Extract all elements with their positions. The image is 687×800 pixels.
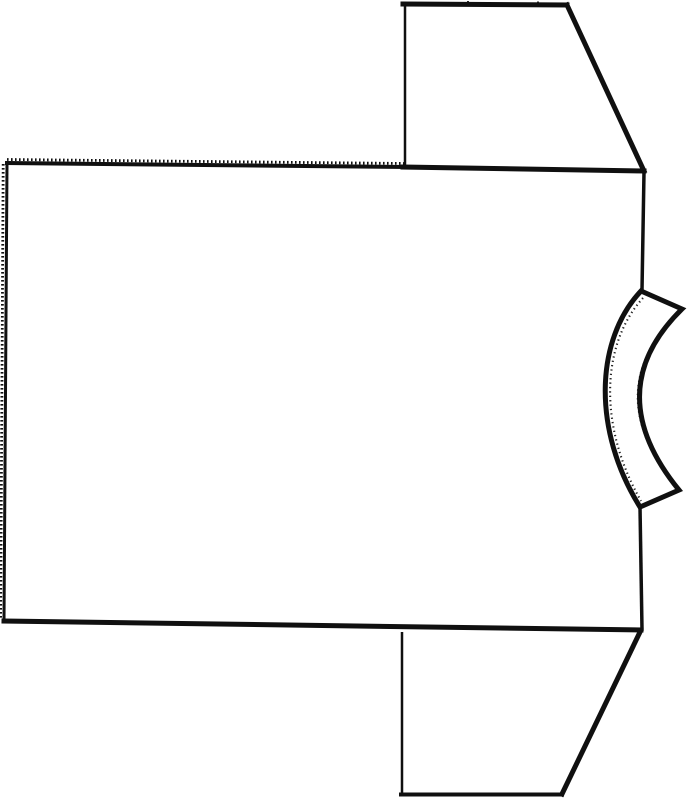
tshirt-pattern-svg: [0, 0, 687, 800]
top-sleeve: [403, 1, 644, 171]
neckband-outline: [605, 291, 682, 507]
body-left-edge: [4, 163, 7, 621]
top-sleeve-top-edge: [403, 4, 567, 5]
bottom-sleeve-diagonal-edge: [562, 632, 640, 794]
bottom-sleeve: [401, 632, 640, 795]
neckline-band: [605, 291, 682, 507]
body-bottom-edge: [4, 621, 641, 630]
top-sleeve-bottom-edge: [403, 167, 644, 171]
pattern-sheet: [0, 0, 687, 800]
body-right-edge-upper: [642, 172, 644, 290]
body-right-edge-lower: [640, 507, 642, 629]
body-left-edge-teeth: [1, 164, 4, 620]
body-panel: [1, 160, 644, 631]
top-sleeve-diagonal-edge: [567, 5, 644, 171]
body-top-edge-serrated: [7, 163, 406, 167]
